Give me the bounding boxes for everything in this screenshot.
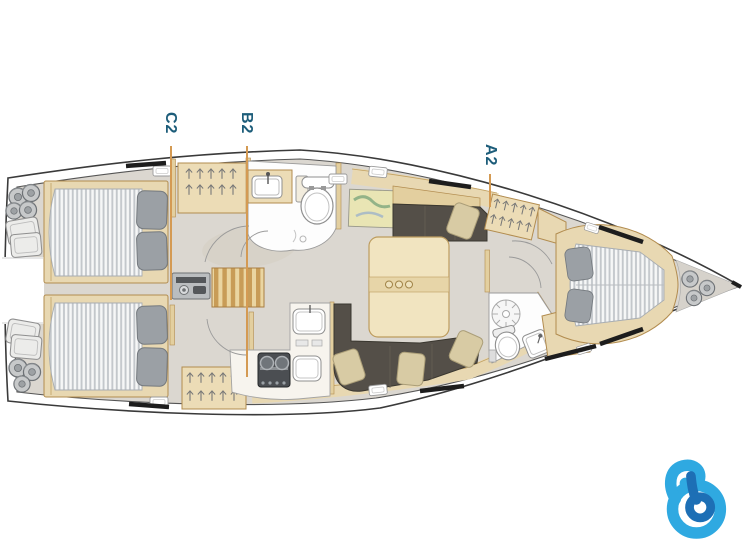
nav-station [348, 189, 394, 228]
sofa-pillow [396, 352, 425, 387]
rope-coil-icon [22, 184, 39, 201]
double-bed-mattress [49, 189, 142, 276]
cup-holder [406, 281, 413, 288]
rope-coil-icon [682, 271, 698, 287]
faucet-head [266, 172, 270, 176]
pillow [136, 347, 167, 386]
pillow [136, 190, 167, 229]
rope-coil-icon [19, 201, 36, 218]
fender-icon [10, 334, 42, 359]
engine-knob-center [182, 288, 186, 292]
wall [249, 312, 254, 352]
shower-head [503, 311, 510, 318]
cabin-label-b2: B2 [238, 112, 254, 134]
stern-platform [0, 257, 44, 324]
burner [261, 357, 274, 370]
pillow [564, 288, 594, 324]
stove-knob [268, 381, 271, 384]
wall [330, 302, 334, 394]
b-logo [644, 456, 736, 542]
yacht-layout-screenshot: C2 B2 A2 [0, 0, 744, 558]
wall [170, 305, 175, 345]
pillow [136, 231, 167, 270]
head-aft [248, 161, 336, 251]
cup-holder [396, 281, 403, 288]
stove-knob [275, 381, 278, 384]
cabin-label-c2: C2 [162, 112, 178, 134]
hatch-icon [369, 166, 388, 178]
engine-panel [193, 286, 206, 294]
toilet-hinge [321, 186, 326, 190]
engine-vent [176, 277, 206, 283]
rope-coil-icon [686, 290, 701, 305]
stove-knob [282, 381, 285, 384]
toilet-hinge [309, 186, 314, 190]
rope-coil-icon [699, 280, 714, 295]
pillow [564, 246, 594, 282]
burner [276, 357, 289, 370]
cup-holder [386, 281, 393, 288]
transom-opening [0, 257, 44, 324]
hatch-icon [153, 166, 171, 176]
rope-coil-icon [14, 376, 30, 392]
hatch-icon [329, 174, 347, 184]
wall [336, 163, 341, 229]
deck-segment [129, 404, 169, 407]
stove-knob [261, 381, 264, 384]
boat-plan [0, 0, 744, 558]
pillow [136, 305, 167, 344]
counter-item [312, 340, 322, 346]
counter-item [296, 340, 308, 346]
hatch-icon [369, 384, 388, 396]
logo-b-bowl [690, 497, 711, 518]
wall [485, 250, 490, 292]
chart-map [348, 189, 394, 228]
double-bed-mattress [49, 303, 142, 390]
fender-icon [10, 232, 42, 257]
bathroom-item [489, 350, 496, 362]
cabin-label-a2: A2 [482, 144, 498, 166]
engine-box [172, 273, 210, 299]
deck-segment [126, 163, 166, 166]
